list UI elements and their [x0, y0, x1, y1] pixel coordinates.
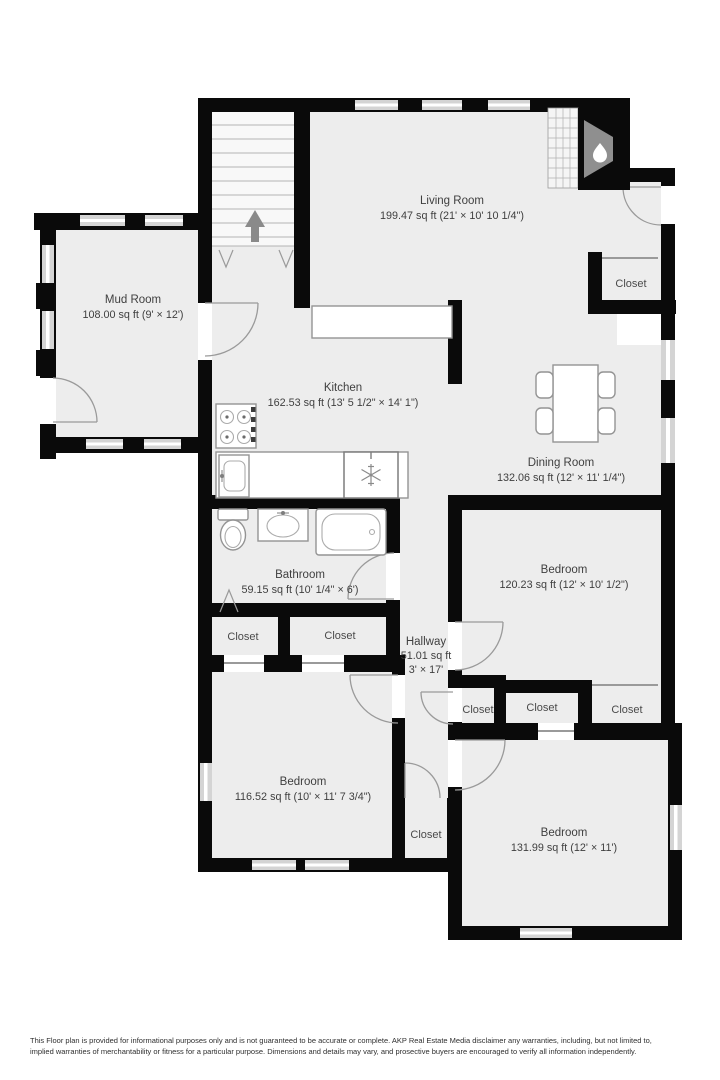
room-area: 199.47 sq ft (21' × 10' 10 1/4")	[380, 210, 524, 222]
bathroom-sink-icon	[258, 509, 308, 541]
closet-label-top-right: Closet	[615, 278, 646, 290]
window	[42, 245, 54, 283]
room-area: 59.15 sq ft (10' 1/4" × 6')	[242, 584, 359, 596]
wall-right-middle	[661, 510, 675, 737]
closet-label-bath-left: Closet	[227, 631, 258, 643]
wall-closetB-top	[494, 680, 590, 693]
wall-mud-pier2	[36, 350, 56, 376]
refrigerator-icon	[344, 452, 398, 498]
staircase	[212, 112, 294, 267]
kitchen-peninsula-counter	[312, 306, 452, 338]
window	[520, 928, 572, 938]
window	[86, 439, 123, 449]
floor-living-right	[610, 182, 661, 312]
wall-bath-bottom	[198, 603, 400, 617]
floor-mud-room	[48, 222, 208, 444]
room-name: Dining Room	[528, 457, 594, 469]
chair-icon	[536, 372, 553, 398]
kitchen-sink-icon	[219, 455, 249, 497]
chair-icon	[536, 408, 553, 434]
floor-plan-page: Living Room 199.47 sq ft (21' × 10' 10 1…	[0, 0, 720, 1080]
window	[145, 215, 183, 226]
stove-icon	[216, 404, 256, 448]
room-name: Mud Room	[105, 294, 161, 306]
window	[200, 763, 212, 801]
wall-closet-tr-bottom	[588, 300, 676, 314]
room-area: 51.01 sq ft	[401, 650, 451, 662]
footer-disclaimer: This Floor plan is provided for informat…	[30, 1035, 652, 1057]
bathtub-icon	[316, 509, 386, 555]
window	[80, 215, 125, 226]
closet-label-bottom-middle: Closet	[410, 829, 441, 841]
room-area: 132.06 sq ft (12' × 11' 1/4")	[497, 472, 625, 484]
floor-bedroom-bottom-left	[205, 655, 405, 865]
wall-closetA-top	[448, 675, 497, 688]
room-area: 162.53 sq ft (13' 5 1/2" × 14' 1")	[268, 397, 419, 409]
room-area: 108.00 sq ft (9' × 12')	[82, 309, 183, 321]
wall-closet-right-side	[386, 617, 400, 655]
room-name: Kitchen	[324, 382, 362, 394]
room-name: Bedroom	[541, 827, 588, 839]
window	[670, 805, 682, 850]
opening-bedroom-middle	[448, 622, 462, 670]
opening-bedroom-bl	[392, 675, 405, 718]
window	[252, 860, 296, 870]
room-area: 131.99 sq ft (12' × 11')	[511, 842, 617, 854]
window	[661, 340, 675, 380]
wall-stair-living	[294, 98, 310, 308]
room-name: Living Room	[420, 195, 484, 207]
opening-mud-exterior	[40, 378, 56, 424]
window	[144, 439, 181, 449]
room-name: Bedroom	[541, 564, 588, 576]
room-name: Bathroom	[275, 569, 325, 581]
window	[355, 100, 398, 110]
opening-mud-kitchen	[198, 303, 212, 360]
room-name: Bedroom	[280, 776, 327, 788]
chair-icon	[598, 408, 615, 434]
wall-bedmid-left	[448, 510, 462, 622]
room-dims: 3' × 17'	[409, 664, 443, 676]
fireplace	[548, 108, 630, 190]
wall-dining-bottom	[448, 495, 675, 510]
window	[488, 100, 530, 110]
room-name: Hallway	[406, 636, 447, 648]
room-area: 116.52 sq ft (10' × 11' 7 3/4")	[235, 791, 371, 803]
opening-bathroom	[386, 553, 400, 600]
window	[661, 418, 675, 463]
window	[422, 100, 462, 110]
opening-closetA	[448, 688, 462, 722]
wall-closetbm-right	[447, 798, 462, 868]
window	[42, 311, 54, 349]
closet-label-bath-right: Closet	[324, 630, 355, 642]
closet-label-hall-right: Closet	[611, 704, 642, 716]
closet-label-hall-left: Closet	[462, 704, 493, 716]
opening-living-right	[661, 186, 675, 224]
opening-bedroom-br	[448, 740, 462, 787]
wall-closet-divider	[278, 617, 290, 655]
floor-plan-drawing: Living Room 199.47 sq ft (21' × 10' 10 1…	[0, 0, 720, 1080]
room-area: 120.23 sq ft (12' × 10' 1/2")	[500, 579, 629, 591]
closet-label-hall-middle: Closet	[526, 702, 557, 714]
wall-mud-pier1	[36, 283, 56, 309]
wall-bedbl-right-b	[392, 718, 405, 868]
wall-bath-right	[386, 495, 400, 553]
floor-bedroom-middle	[455, 505, 668, 695]
window	[305, 860, 349, 870]
wall-mud-bottom	[40, 437, 212, 453]
toilet-icon	[218, 509, 248, 550]
chair-icon	[598, 372, 615, 398]
